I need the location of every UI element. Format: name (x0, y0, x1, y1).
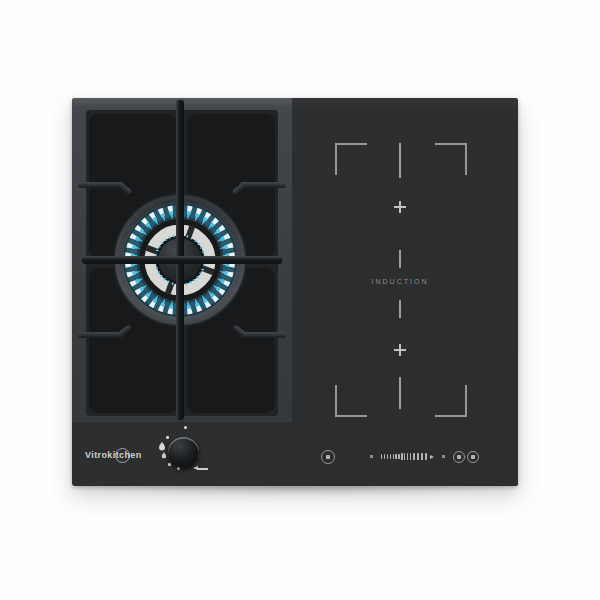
gas-control-knob[interactable] (168, 437, 199, 468)
zone-center-plus-icon (394, 344, 406, 356)
zone-corner-bracket (335, 385, 367, 417)
pan-support-arm (78, 332, 124, 338)
induction-label: INDUCTION (292, 278, 508, 285)
pan-support-bar-horizontal (82, 256, 282, 264)
power-button[interactable] (321, 450, 335, 464)
zone-divider-dash (399, 300, 401, 318)
knob-off-dot-icon (184, 426, 187, 429)
zone-divider-dash (399, 250, 401, 268)
induction-hob-section: INDUCTION (292, 98, 518, 486)
knob-spark-dot-icon (166, 436, 169, 439)
zone-divider-dash (399, 143, 401, 178)
gas-hob-section (72, 98, 292, 422)
lock-button[interactable] (467, 451, 479, 463)
slider-start-marker (370, 455, 373, 458)
brand-ring-icon (115, 448, 130, 463)
knob-low-dot-icon (168, 463, 171, 466)
zone-center-plus-icon (394, 201, 406, 213)
knob-small-flame-icon (161, 452, 167, 459)
pan-support-arm (240, 182, 286, 188)
brand-text: Vitrokitchen (85, 450, 142, 460)
zone-corner-bracket (435, 385, 467, 417)
knob-large-flame-icon (158, 442, 166, 451)
hob: INDUCTION Vitrokitchen (72, 98, 518, 486)
timer-button[interactable] (453, 451, 465, 463)
zone-divider-dash (399, 377, 401, 409)
zone-corner-bracket (335, 143, 367, 175)
pan-support-arm (240, 332, 286, 338)
power-level-slider[interactable] (381, 450, 441, 463)
slider-end-marker (442, 455, 445, 458)
knob-push-arrow-icon (193, 466, 208, 471)
zone-corner-bracket (435, 143, 467, 175)
product-photo: INDUCTION Vitrokitchen (0, 0, 600, 600)
pan-support-arm (78, 182, 124, 188)
slider-arrow-icon (430, 455, 434, 459)
